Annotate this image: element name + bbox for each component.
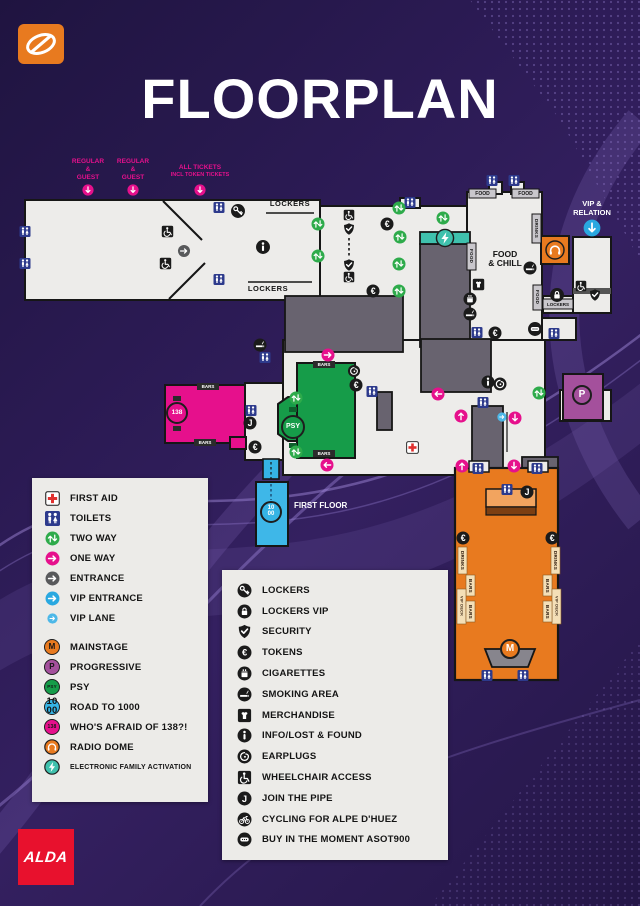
gate-arrow-icon <box>194 184 205 195</box>
legend-item-join-the-pipe: JOIN THE PIPE <box>236 788 448 809</box>
legend-item-vip-entrance: VIP ENTRANCE <box>44 588 208 608</box>
first-aid-icon <box>44 490 60 506</box>
toilets-icon <box>482 670 493 681</box>
two-way-icon <box>392 257 405 270</box>
toilets-icon <box>20 258 31 269</box>
legend-services-panel: LOCKERS LOCKERS VIP SECURITY TOKENS CIGA… <box>222 570 448 860</box>
legend-item-one-way: ONE WAY <box>44 548 208 568</box>
legend-item-tokens: TOKENS <box>236 642 448 663</box>
two-way-icon <box>436 211 449 224</box>
food-strip-label: FOOD <box>533 285 542 310</box>
tokens-icon <box>488 326 501 339</box>
legend-item-road-to-1000: 1000ROAD TO 1000 <box>44 697 208 717</box>
buy-moment-icon <box>236 832 252 848</box>
two-way-icon <box>392 284 405 297</box>
join-the-pipe-icon <box>520 485 533 498</box>
legend-item-progressive: PPROGRESSIVE <box>44 657 208 677</box>
one-way-icon <box>44 550 60 566</box>
legend-item-wheelchair-access: WHEELCHAIR ACCESS <box>236 767 448 788</box>
vip-deck-strip-label: VIP DECK <box>552 589 561 624</box>
mainstage-badge: M <box>500 639 520 659</box>
legend-item-lockers: LOCKERS <box>236 580 448 601</box>
two-way-icon <box>289 391 302 404</box>
drinks-strip-label: DRINKS <box>458 547 467 574</box>
bars-strip-label: BARS <box>194 440 216 445</box>
legend-item-two-way: TWO WAY <box>44 528 208 548</box>
alda-logo: ALDA <box>18 829 74 885</box>
lockers-icon <box>236 582 252 598</box>
merchandise-icon <box>236 707 252 723</box>
two-way-icon <box>393 230 406 243</box>
join-the-pipe-icon <box>243 416 256 429</box>
progressive-badge: P <box>572 385 592 405</box>
two-way-icon <box>392 201 405 214</box>
electronic-family-icon <box>436 229 453 246</box>
legend-item-afraid-138: 138WHO'S AFRAID OF 138?! <box>44 717 208 737</box>
toilets-icon <box>246 405 257 416</box>
legend-item-psy: PSYPSY <box>44 677 208 697</box>
bars-strip-label: BARS <box>543 601 552 622</box>
one-way-icon <box>507 459 520 472</box>
one-way-icon <box>431 387 444 400</box>
lockers-vip-icon <box>236 603 252 619</box>
first-aid-icon <box>407 442 419 454</box>
psy-badge: PSY <box>44 679 60 695</box>
drinks-strip-label: DRINKS <box>532 214 541 243</box>
legend-item-vip-lane: VIP LANE <box>44 608 208 628</box>
earplugs-icon <box>236 749 252 765</box>
legend-item-electronic-family: ELECTRONIC FAMILY ACTIVATION <box>44 757 208 777</box>
lockers-vip-icon <box>550 288 564 302</box>
afraid-138-badge: 138 <box>166 402 188 424</box>
legend-item-buy-moment: BUY IN THE MOMENT ASOT900 <box>236 830 448 851</box>
toilets-icon <box>509 175 520 186</box>
bars-strip-label: BARS <box>313 362 335 367</box>
legend-areas-panel: FIRST AID TOILETS TWO WAY ONE WAY ENTRAN… <box>32 478 208 802</box>
earplugs-icon <box>493 377 506 390</box>
first-floor-label: FIRST FLOOR <box>294 501 364 510</box>
vip-entrance-icon <box>584 220 601 237</box>
join-the-pipe-icon <box>236 790 252 806</box>
tokens-icon <box>236 645 252 661</box>
bars-strip-label: BARS <box>543 575 552 596</box>
legend-item-entrance: ENTRANCE <box>44 568 208 588</box>
legend-item-cycling: CYCLING FOR ALPE D'HUEZ <box>236 809 448 830</box>
toilets-icon <box>214 202 225 213</box>
psy-badge: PSY <box>281 415 305 439</box>
electronic-family-icon <box>44 759 60 775</box>
merchandise-icon <box>473 279 484 290</box>
wheelchair-icon <box>344 272 355 283</box>
entrance-icon <box>44 570 60 586</box>
mainstage-badge: M <box>44 639 60 655</box>
vip-lane-icon <box>44 610 60 626</box>
security-icon <box>236 624 252 640</box>
legend-item-toilets: TOILETS <box>44 508 208 528</box>
legend-item-merchandise: MERCHANDISE <box>236 705 448 726</box>
floorplan-poster: € J <box>0 0 640 906</box>
tokens-icon <box>545 531 558 544</box>
drinks-strip-label: DRINKS <box>551 547 560 574</box>
bars-strip-label: BARS <box>313 451 335 456</box>
one-way-icon <box>320 458 333 471</box>
toilets-icon <box>405 197 416 208</box>
toilets-icon <box>260 352 271 363</box>
toilets-icon <box>532 463 543 474</box>
one-way-icon <box>321 348 334 361</box>
tokens-icon <box>349 378 362 391</box>
food-chill-label: FOOD& CHILL <box>478 250 532 269</box>
asot-logo <box>18 24 64 64</box>
one-way-icon <box>508 411 521 424</box>
lockers-label-top: LOCKERS <box>268 199 312 208</box>
toilets-icon <box>20 226 31 237</box>
toilets-icon <box>367 386 378 397</box>
legend-item-security: SECURITY <box>236 622 448 643</box>
one-way-icon <box>454 409 467 422</box>
cigarettes-icon <box>236 666 252 682</box>
wheelchair-icon <box>344 210 355 221</box>
entrance-icon <box>178 245 190 257</box>
smoking-area-icon <box>236 686 252 702</box>
bars-strip-label: BARS <box>466 601 475 622</box>
toilets-icon <box>478 397 489 408</box>
toilets-icon <box>487 175 498 186</box>
lockers-icon <box>231 204 245 218</box>
lockers-strip-label: LOCKERS <box>543 302 573 307</box>
wheelchair-icon <box>576 281 587 292</box>
two-way-icon <box>289 445 302 458</box>
toilets-icon <box>214 274 225 285</box>
radio-dome-icon <box>546 241 564 259</box>
buy-moment-icon <box>528 322 542 336</box>
wheelchair-icon <box>162 226 173 237</box>
toilets-icon <box>44 510 60 526</box>
legend-item-cigarettes: CIGARETTES <box>236 663 448 684</box>
toilets-icon <box>518 670 529 681</box>
smoking-area-icon <box>253 338 266 351</box>
food-strip-label: FOOD <box>512 191 539 197</box>
toilets-icon <box>502 484 513 495</box>
page-title: FLOORPLAN <box>0 66 640 131</box>
legend-item-earplugs: EARPLUGS <box>236 746 448 767</box>
legend-item-mainstage: MMAINSTAGE <box>44 637 208 657</box>
two-way-icon <box>311 217 324 230</box>
wheelchair-icon <box>236 770 252 786</box>
earplugs-icon <box>348 365 360 377</box>
vip-lane-icon <box>497 412 506 421</box>
gate-label-regular-guest-2: REGULAR&GUEST <box>107 158 159 181</box>
gate-arrow-icon <box>82 184 93 195</box>
gate-arrow-icon <box>127 184 138 195</box>
progressive-badge: P <box>44 659 60 675</box>
lockers-label-bottom: LOCKERS <box>246 284 290 293</box>
tokens-icon <box>366 284 379 297</box>
legend-item-first-aid: FIRST AID <box>44 488 208 508</box>
vip-deck-strip-label: VIP DECK <box>457 589 466 624</box>
two-way-icon <box>532 386 545 399</box>
tokens-icon <box>248 440 261 453</box>
road-to-1000-badge: 1000 <box>260 501 282 523</box>
toilets-icon <box>473 463 484 474</box>
toilets-icon <box>549 328 560 339</box>
toilets-icon <box>472 327 483 338</box>
radio-dome-icon <box>44 739 60 755</box>
legend-item-radio-dome: RADIO DOME <box>44 737 208 757</box>
two-way-icon <box>44 530 60 546</box>
food-strip-label: FOOD <box>467 243 476 270</box>
cycling-icon <box>236 811 252 827</box>
vip-entrance-icon <box>44 590 60 606</box>
legend-item-lockers-vip: LOCKERS VIP <box>236 601 448 622</box>
tokens-icon <box>456 531 469 544</box>
wheelchair-icon <box>160 258 171 269</box>
tokens-icon <box>380 217 393 230</box>
two-way-icon <box>311 249 324 262</box>
info-icon <box>256 240 270 254</box>
smoking-area-icon <box>463 307 476 320</box>
one-way-icon <box>455 459 468 472</box>
info-icon <box>481 375 494 388</box>
legend-item-info-lost-found: INFO/LOST & FOUND <box>236 726 448 747</box>
vip-relation-label: VIP &RELATION <box>560 199 624 217</box>
food-strip-label: FOOD <box>469 191 496 197</box>
bars-strip-label: BARS <box>466 575 475 596</box>
gate-label-all-tickets: ALL TICKETSINCL TOKEN TICKETS <box>162 164 238 178</box>
legend-item-smoking-area: SMOKING AREA <box>236 684 448 705</box>
road-to-1000-badge: 1000 <box>44 699 60 715</box>
afraid-138-badge: 138 <box>44 719 60 735</box>
cigarettes-icon <box>463 292 476 305</box>
bars-strip-label: BARS <box>197 384 219 389</box>
info-icon <box>236 728 252 744</box>
